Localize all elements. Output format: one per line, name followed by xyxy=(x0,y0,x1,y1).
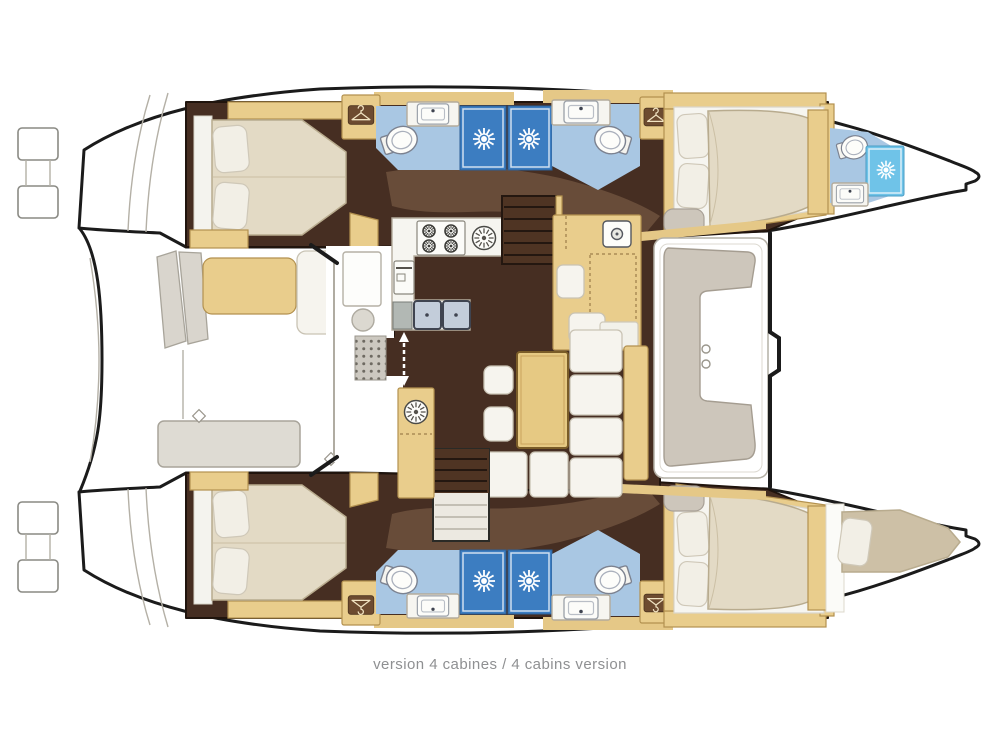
nav-seat-cushion xyxy=(557,265,584,298)
sink-drain xyxy=(425,313,429,317)
starboard-bow-berth xyxy=(808,504,960,612)
bow-bulkhead xyxy=(808,506,828,610)
plan-caption: version 4 cabines / 4 cabins version xyxy=(0,656,1000,673)
bow-bulkhead xyxy=(808,110,828,214)
stove-burner-icon xyxy=(423,225,435,237)
companionway-landing xyxy=(333,376,403,462)
stove-burner-icon xyxy=(445,240,457,252)
sofa-cushion xyxy=(570,330,622,372)
forward-crossbeam xyxy=(770,233,779,487)
sofa-cushion xyxy=(570,375,622,415)
appliance-panel xyxy=(343,252,381,306)
sofa-cushion xyxy=(530,452,568,497)
round-sink-icon xyxy=(405,401,428,424)
cup-holder-icon xyxy=(702,360,710,368)
porthole-appliance-icon xyxy=(352,309,374,331)
sofa-cushion xyxy=(570,458,622,497)
floor-plan-canvas xyxy=(0,0,1000,750)
sofa-cushion xyxy=(484,452,527,497)
washbasin-icon xyxy=(836,185,863,203)
nav-instrument-dial-dot xyxy=(616,233,619,236)
stool xyxy=(484,366,513,394)
aft-cockpit xyxy=(80,229,338,491)
sofa-cushion xyxy=(570,418,622,455)
saloon-table xyxy=(517,352,568,448)
cockpit-bench-cushion xyxy=(203,258,296,314)
floor-mat xyxy=(355,336,386,380)
cockpit-table xyxy=(158,421,300,467)
stove-burner-icon xyxy=(423,240,435,252)
cup-holder-icon xyxy=(702,345,710,353)
stove-burner-icon xyxy=(445,225,457,237)
stool xyxy=(484,407,513,441)
pillow xyxy=(837,517,873,567)
drainboard xyxy=(393,302,412,329)
sofa-back xyxy=(624,346,648,480)
sink-drain xyxy=(454,313,458,317)
stairs-to-starboard-hull xyxy=(433,449,489,541)
round-sink-icon xyxy=(473,227,496,250)
boat-floor-plan: version 4 cabines / 4 cabins version xyxy=(0,0,1000,750)
forward-cockpit xyxy=(654,233,779,487)
